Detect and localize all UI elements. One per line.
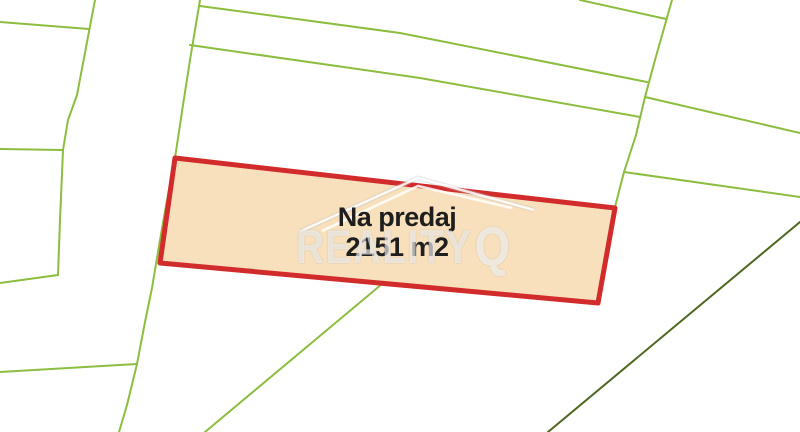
boundary-line-upper-diagonal-b bbox=[190, 45, 640, 117]
boundary-line-road-left-edge bbox=[58, 0, 95, 275]
cadastral-map: Na predaj 2151 m2 REALITY Q bbox=[0, 0, 800, 432]
parcel-area-text: 2151 m2 bbox=[277, 232, 517, 262]
boundary-line-bottom-diagonal bbox=[205, 284, 382, 432]
boundary-line-upper-diagonal-a bbox=[200, 6, 647, 82]
boundary-line-topright-short bbox=[580, 0, 666, 19]
parcel-label: Na predaj 2151 m2 bbox=[277, 202, 517, 262]
boundary-line-left-lower bbox=[0, 275, 58, 283]
boundary-line-right-main bbox=[615, 0, 672, 207]
boundary-line-left-bottom bbox=[0, 364, 137, 372]
boundary-line-right-branch-lower bbox=[624, 172, 800, 197]
boundary-line-left-middle bbox=[0, 149, 63, 150]
boundary-line-right-branch-upper bbox=[645, 97, 800, 133]
boundary-line-left-top bbox=[0, 22, 89, 29]
parcel-status-text: Na predaj bbox=[277, 202, 517, 232]
